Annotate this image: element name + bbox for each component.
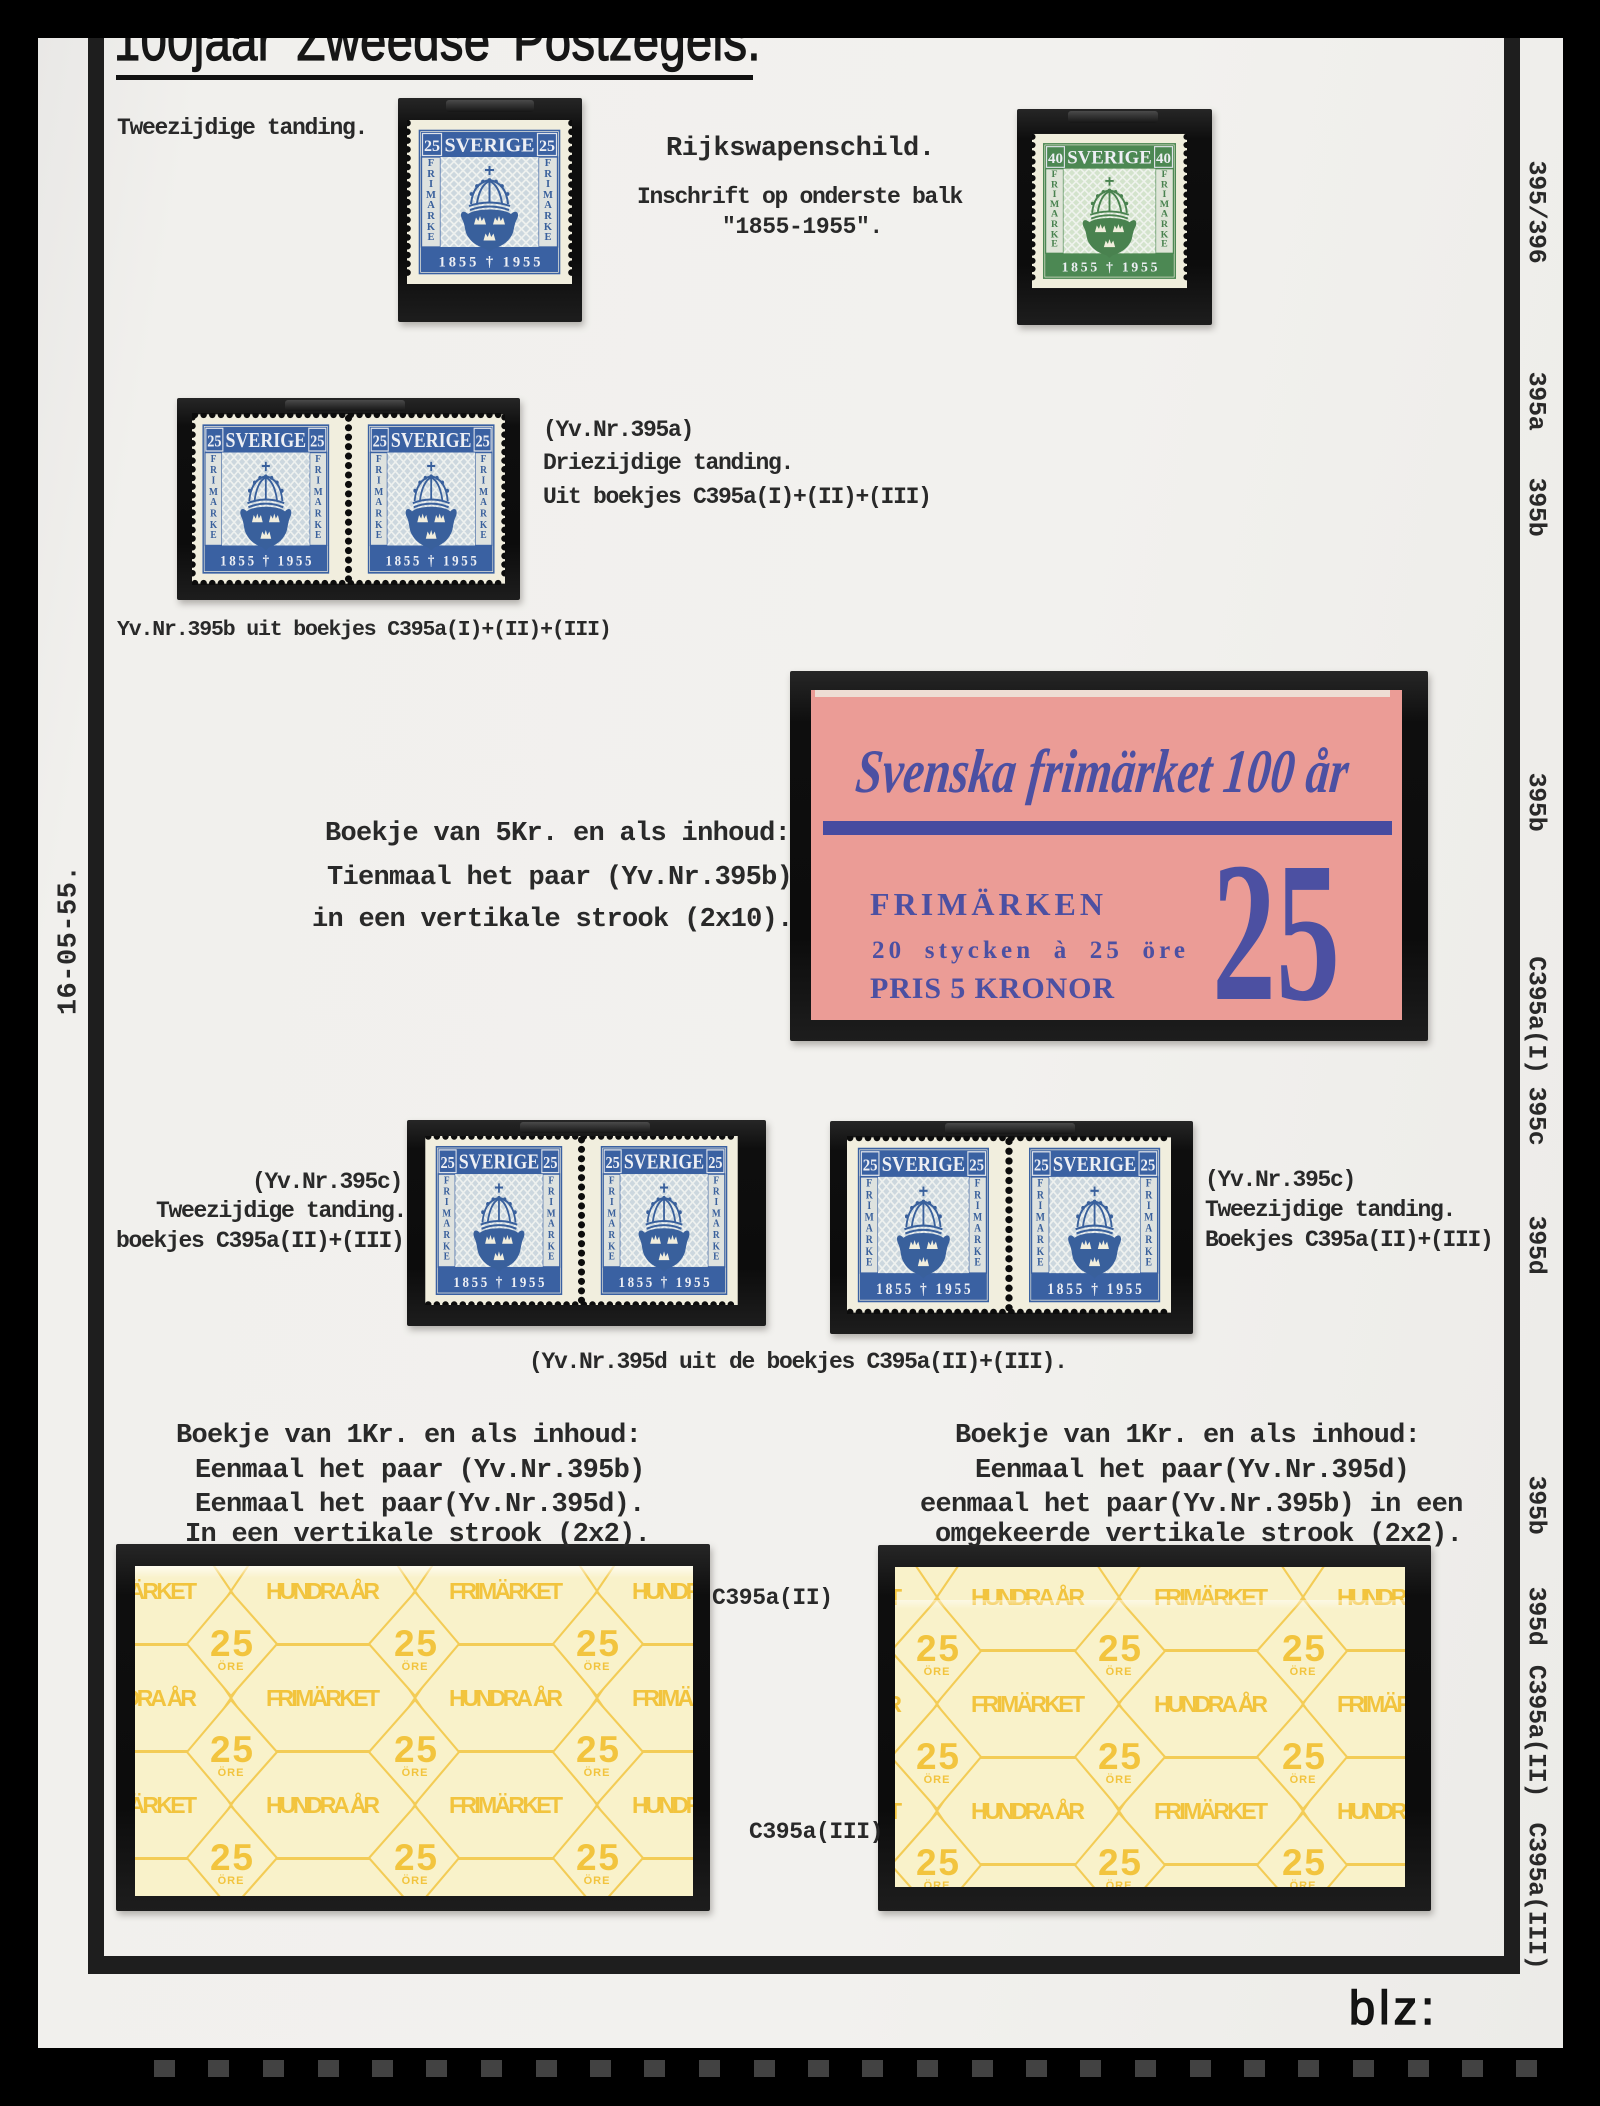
svg-text:E: E: [376, 530, 382, 542]
svg-text:F: F: [545, 158, 551, 169]
svg-text:ÖRE: ÖRE: [924, 1665, 951, 1678]
svg-text:R: R: [544, 211, 552, 222]
svg-text:25: 25: [207, 432, 222, 450]
svg-text:20 stycken à 25 öre: 20 stycken à 25 öre: [872, 937, 1185, 964]
svg-text:I: I: [1163, 189, 1167, 200]
svg-text:A: A: [548, 1218, 555, 1230]
svg-text:ÖRE: ÖRE: [1106, 1665, 1133, 1678]
svg-text:25: 25: [1140, 1157, 1155, 1175]
svg-text:ÖRE: ÖRE: [218, 1766, 245, 1779]
svg-text:I: I: [549, 1196, 553, 1208]
svg-text:R: R: [866, 1235, 873, 1247]
svg-text:E: E: [974, 1257, 980, 1269]
svg-text:1855 † 1955: 1855 † 1955: [1047, 1281, 1141, 1298]
svg-text:FRIMÄRKET: FRIMÄRKET: [449, 1792, 563, 1818]
svg-text:E: E: [210, 530, 216, 542]
svg-text:FRIMÄRKET: FRIMÄRKET: [895, 1798, 902, 1824]
svg-text:I: I: [377, 475, 381, 487]
svg-text:25: 25: [543, 1154, 558, 1172]
svg-text:FRIMÄRKET: FRIMÄRKET: [135, 1792, 197, 1818]
svg-text:E: E: [427, 232, 434, 243]
svg-text:R: R: [427, 211, 435, 222]
svg-text:25: 25: [310, 432, 325, 450]
svg-text:ÖRE: ÖRE: [584, 1766, 611, 1779]
svg-text:R: R: [443, 1229, 450, 1241]
svg-text:E: E: [544, 232, 551, 243]
svg-text:ÖRE: ÖRE: [924, 1879, 951, 1887]
svg-text:SVERIGE: SVERIGE: [459, 1151, 539, 1173]
svg-text:1855 † 1955: 1855 † 1955: [453, 1275, 544, 1291]
svg-text:ÖRE: ÖRE: [1290, 1773, 1317, 1786]
svg-text:A: A: [1037, 1223, 1044, 1235]
svg-text:HUNDRA ÅR: HUNDRA ÅR: [895, 1690, 902, 1717]
svg-text:HUNDRA ÅR: HUNDRA ÅR: [266, 1791, 380, 1818]
svg-text:A: A: [1161, 209, 1169, 220]
svg-text:R: R: [713, 1229, 720, 1241]
svg-text:ÖRE: ÖRE: [924, 1773, 951, 1786]
svg-text:A: A: [480, 497, 487, 509]
svg-text:1855 † 1955: 1855 † 1955: [618, 1275, 709, 1291]
svg-text:F: F: [975, 1178, 981, 1190]
svg-text:ÖRE: ÖRE: [1106, 1879, 1133, 1887]
svg-text:E: E: [1146, 1257, 1152, 1269]
svg-text:ÖRE: ÖRE: [1290, 1879, 1317, 1887]
svg-text:I: I: [976, 1200, 980, 1212]
svg-text:FRIMÄRKET: FRIMÄRKET: [1337, 1691, 1405, 1717]
svg-text:FRIMÄRKEN: FRIMÄRKEN: [870, 886, 1109, 922]
svg-text:I: I: [1147, 1200, 1151, 1212]
svg-text:I: I: [429, 179, 433, 190]
svg-text:A: A: [443, 1218, 450, 1230]
svg-text:SVERIGE: SVERIGE: [391, 430, 472, 452]
svg-text:I: I: [1053, 189, 1057, 200]
svg-text:HUNDRA ÅR: HUNDRA ÅR: [266, 1577, 380, 1604]
svg-text:F: F: [713, 1175, 719, 1187]
svg-text:E: E: [1161, 239, 1168, 250]
svg-text:I: I: [610, 1196, 614, 1208]
svg-text:E: E: [1051, 239, 1058, 250]
svg-text:E: E: [480, 530, 486, 542]
svg-text:ÖRE: ÖRE: [402, 1660, 429, 1673]
svg-text:SVERIGE: SVERIGE: [882, 1153, 965, 1177]
svg-text:R: R: [210, 508, 217, 520]
svg-text:R: R: [1161, 219, 1169, 230]
svg-text:F: F: [1052, 169, 1058, 180]
svg-text:A: A: [608, 1218, 615, 1230]
svg-text:SVERIGE: SVERIGE: [226, 430, 307, 452]
svg-text:HUNDRA ÅR: HUNDRA ÅR: [1154, 1690, 1268, 1717]
svg-text:SVERIGE: SVERIGE: [624, 1151, 704, 1173]
svg-text:I: I: [1039, 1200, 1043, 1212]
svg-text:1855 † 1955: 1855 † 1955: [386, 554, 477, 570]
svg-text:A: A: [544, 200, 552, 211]
svg-text:R: R: [1037, 1235, 1044, 1247]
svg-text:25: 25: [863, 1157, 878, 1175]
svg-text:I: I: [316, 475, 320, 487]
svg-text:FRIMÄRKET: FRIMÄRKET: [449, 1578, 563, 1604]
svg-text:F: F: [444, 1175, 450, 1187]
svg-text:40: 40: [1048, 151, 1063, 167]
svg-text:F: F: [315, 453, 321, 465]
svg-text:F: F: [1146, 1178, 1152, 1190]
svg-text:R: R: [608, 1229, 615, 1241]
svg-text:A: A: [315, 497, 322, 509]
svg-text:E: E: [444, 1251, 450, 1263]
svg-text:ÖRE: ÖRE: [402, 1766, 429, 1779]
svg-text:ÖRE: ÖRE: [218, 1660, 245, 1673]
svg-text:A: A: [713, 1218, 720, 1230]
svg-text:ÖRE: ÖRE: [1106, 1773, 1133, 1786]
svg-text:25: 25: [1034, 1157, 1049, 1175]
svg-text:F: F: [376, 453, 382, 465]
svg-text:ÖRE: ÖRE: [584, 1660, 611, 1673]
svg-text:I: I: [445, 1196, 449, 1208]
svg-text:A: A: [866, 1223, 873, 1235]
svg-text:SVERIGE: SVERIGE: [1067, 148, 1152, 169]
svg-text:FRIMÄRKET: FRIMÄRKET: [266, 1685, 380, 1711]
svg-text:1855 † 1955: 1855 † 1955: [220, 554, 311, 570]
svg-text:R: R: [974, 1235, 981, 1247]
svg-text:HUNDRA ÅR: HUNDRA ÅR: [135, 1684, 197, 1711]
svg-text:FRIMÄRKET: FRIMÄRKET: [971, 1691, 1085, 1717]
svg-text:ÖRE: ÖRE: [584, 1874, 611, 1887]
svg-text:A: A: [1145, 1223, 1152, 1235]
svg-text:R: R: [1051, 219, 1059, 230]
svg-text:25: 25: [969, 1157, 984, 1175]
svg-text:F: F: [866, 1178, 872, 1190]
svg-text:ÖRE: ÖRE: [402, 1874, 429, 1887]
svg-text:HUNDRA ÅR: HUNDRA ÅR: [632, 1791, 693, 1818]
svg-text:E: E: [315, 530, 321, 542]
svg-text:F: F: [609, 1175, 615, 1187]
svg-text:HUNDRA ÅR: HUNDRA ÅR: [1337, 1797, 1405, 1824]
svg-text:A: A: [427, 200, 435, 211]
svg-text:R: R: [480, 508, 487, 520]
svg-text:25: 25: [606, 1154, 621, 1172]
svg-text:F: F: [211, 453, 217, 465]
svg-text:SVERIGE: SVERIGE: [445, 135, 535, 157]
svg-text:25: 25: [1212, 822, 1340, 1020]
svg-text:Svenska frimärket 100 år: Svenska frimärket 100 år: [853, 738, 1353, 806]
svg-text:A: A: [375, 497, 382, 509]
svg-text:I: I: [212, 475, 216, 487]
svg-text:1855 † 1955: 1855 † 1955: [876, 1281, 970, 1298]
svg-text:PRIS 5 KRONOR: PRIS 5 KRONOR: [870, 972, 1117, 1005]
svg-text:F: F: [1161, 169, 1167, 180]
svg-text:ÖRE: ÖRE: [1290, 1665, 1317, 1678]
svg-text:R: R: [548, 1229, 555, 1241]
svg-text:25: 25: [373, 432, 388, 450]
svg-text:25: 25: [475, 432, 490, 450]
svg-text:E: E: [1037, 1257, 1043, 1269]
svg-text:HUNDRA ÅR: HUNDRA ÅR: [632, 1577, 693, 1604]
svg-text:R: R: [315, 508, 322, 520]
svg-text:SVERIGE: SVERIGE: [1053, 1153, 1136, 1177]
svg-text:FRIMÄRKET: FRIMÄRKET: [135, 1578, 197, 1604]
svg-text:F: F: [481, 453, 487, 465]
svg-text:E: E: [713, 1251, 719, 1263]
svg-text:A: A: [210, 497, 217, 509]
svg-text:F: F: [1037, 1178, 1043, 1190]
svg-text:25: 25: [424, 138, 440, 155]
svg-text:R: R: [1145, 1235, 1152, 1247]
svg-text:FRIMÄRKET: FRIMÄRKET: [632, 1685, 693, 1711]
svg-text:25: 25: [440, 1154, 455, 1172]
svg-text:E: E: [609, 1251, 615, 1263]
svg-text:E: E: [548, 1251, 554, 1263]
svg-text:I: I: [714, 1196, 718, 1208]
svg-text:I: I: [482, 475, 486, 487]
svg-text:HUNDRA ÅR: HUNDRA ÅR: [971, 1797, 1085, 1824]
svg-text:F: F: [548, 1175, 554, 1187]
svg-text:I: I: [546, 179, 550, 190]
svg-text:F: F: [428, 158, 434, 169]
svg-text:ÖRE: ÖRE: [218, 1874, 245, 1887]
svg-text:1855 † 1955: 1855 † 1955: [1062, 260, 1158, 275]
svg-text:HUNDRA ÅR: HUNDRA ÅR: [449, 1684, 563, 1711]
svg-text:R: R: [375, 508, 382, 520]
svg-text:A: A: [1051, 209, 1059, 220]
svg-text:1855 † 1955: 1855 † 1955: [439, 255, 541, 271]
svg-text:I: I: [867, 1200, 871, 1212]
svg-text:25: 25: [539, 138, 555, 155]
svg-text:E: E: [866, 1257, 872, 1269]
svg-text:40: 40: [1156, 151, 1171, 167]
svg-text:A: A: [974, 1223, 981, 1235]
svg-text:25: 25: [708, 1154, 723, 1172]
svg-text:FRIMÄRKET: FRIMÄRKET: [1154, 1798, 1268, 1824]
